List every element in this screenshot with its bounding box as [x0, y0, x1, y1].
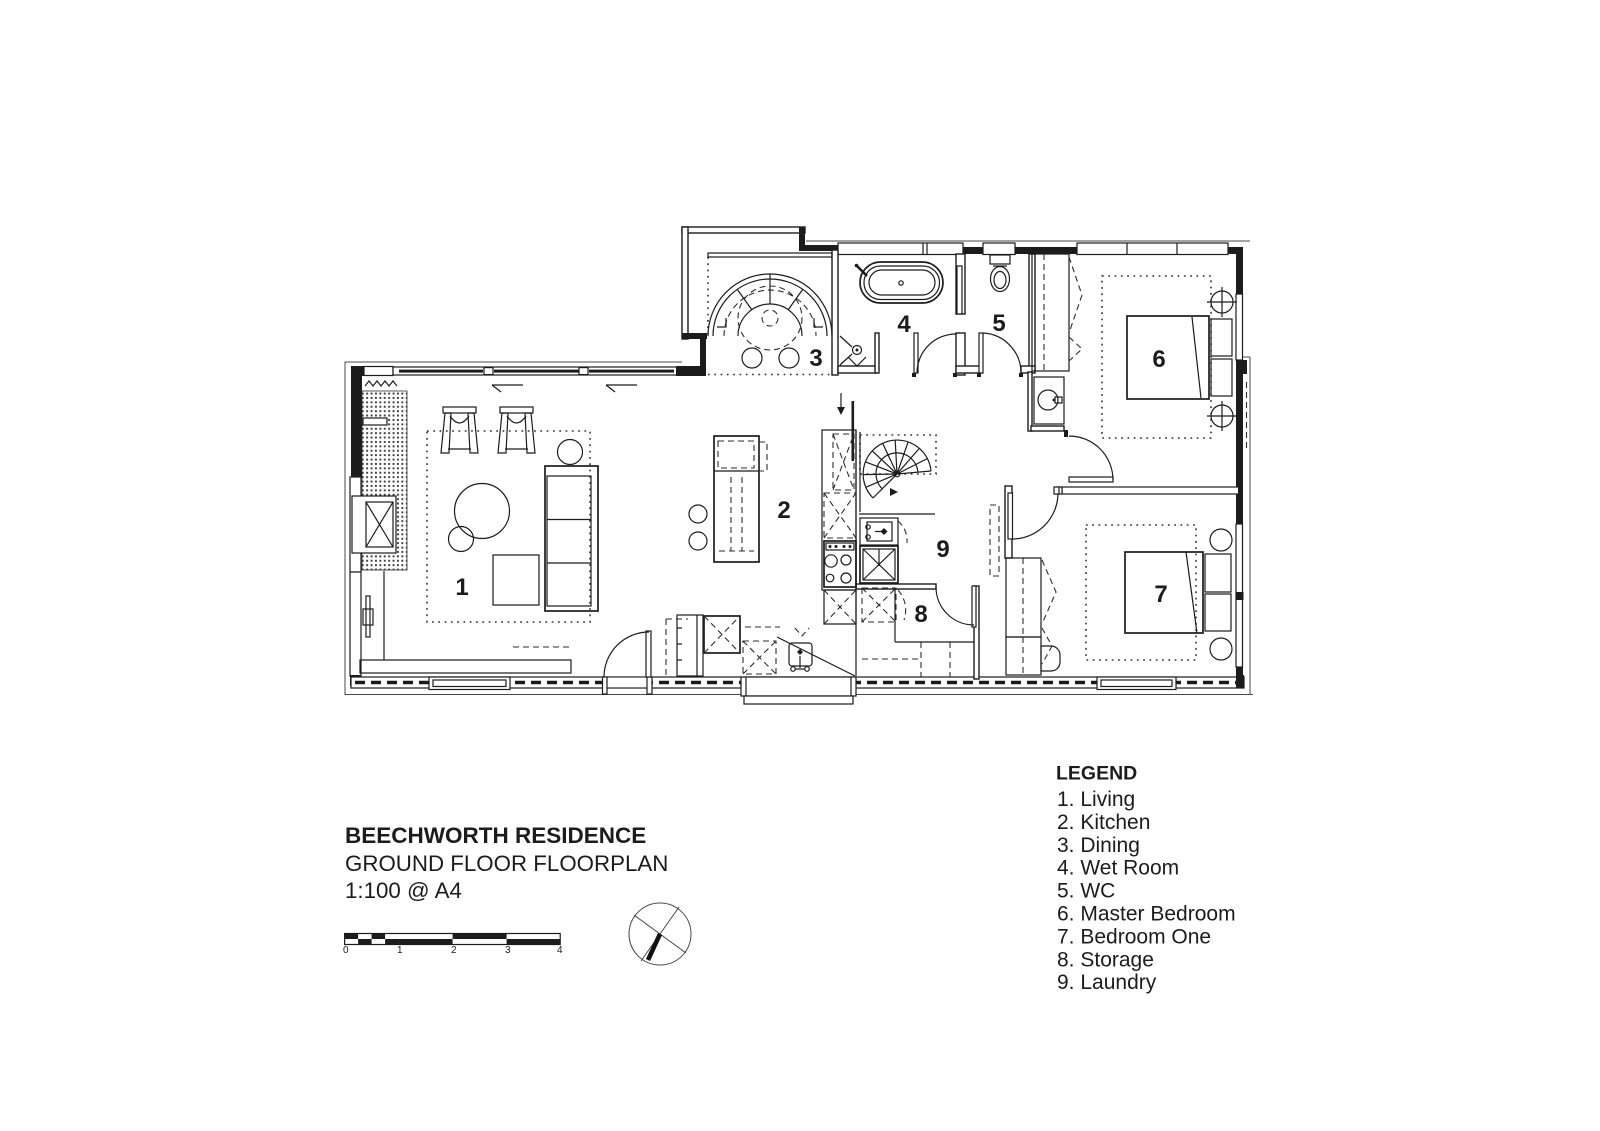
- svg-text:7. Bedroom One: 7. Bedroom One: [1057, 925, 1211, 948]
- svg-text:3: 3: [505, 945, 511, 956]
- svg-text:1: 1: [397, 945, 403, 956]
- svg-text:3. Dining: 3. Dining: [1057, 834, 1140, 857]
- svg-text:4. Wet Room: 4. Wet Room: [1057, 857, 1179, 880]
- svg-text:4: 4: [897, 311, 911, 338]
- svg-text:BEECHWORTH RESIDENCE: BEECHWORTH RESIDENCE: [345, 823, 646, 848]
- svg-text:5. WC: 5. WC: [1057, 880, 1115, 903]
- svg-text:6. Master Bedroom: 6. Master Bedroom: [1057, 903, 1236, 926]
- svg-text:2. Kitchen: 2. Kitchen: [1057, 811, 1150, 834]
- svg-text:GROUND FLOOR FLOORPLAN: GROUND FLOOR FLOORPLAN: [345, 851, 668, 876]
- svg-text:7: 7: [1154, 581, 1167, 608]
- svg-text:1: 1: [455, 574, 468, 601]
- svg-text:9: 9: [936, 536, 949, 563]
- svg-text:5: 5: [992, 310, 1005, 337]
- svg-text:2: 2: [777, 497, 790, 524]
- svg-text:4: 4: [557, 945, 563, 956]
- svg-text:6: 6: [1152, 346, 1165, 373]
- svg-text:1. Living: 1. Living: [1057, 788, 1135, 811]
- svg-text:3: 3: [809, 345, 822, 372]
- svg-text:9. Laundry: 9. Laundry: [1057, 971, 1157, 994]
- svg-text:0: 0: [343, 945, 349, 956]
- svg-text:8: 8: [914, 601, 927, 628]
- svg-text:LEGEND: LEGEND: [1056, 763, 1137, 785]
- svg-text:8. Storage: 8. Storage: [1057, 948, 1154, 971]
- svg-text:1:100 @ A4: 1:100 @ A4: [345, 878, 462, 903]
- svg-text:2: 2: [451, 945, 457, 956]
